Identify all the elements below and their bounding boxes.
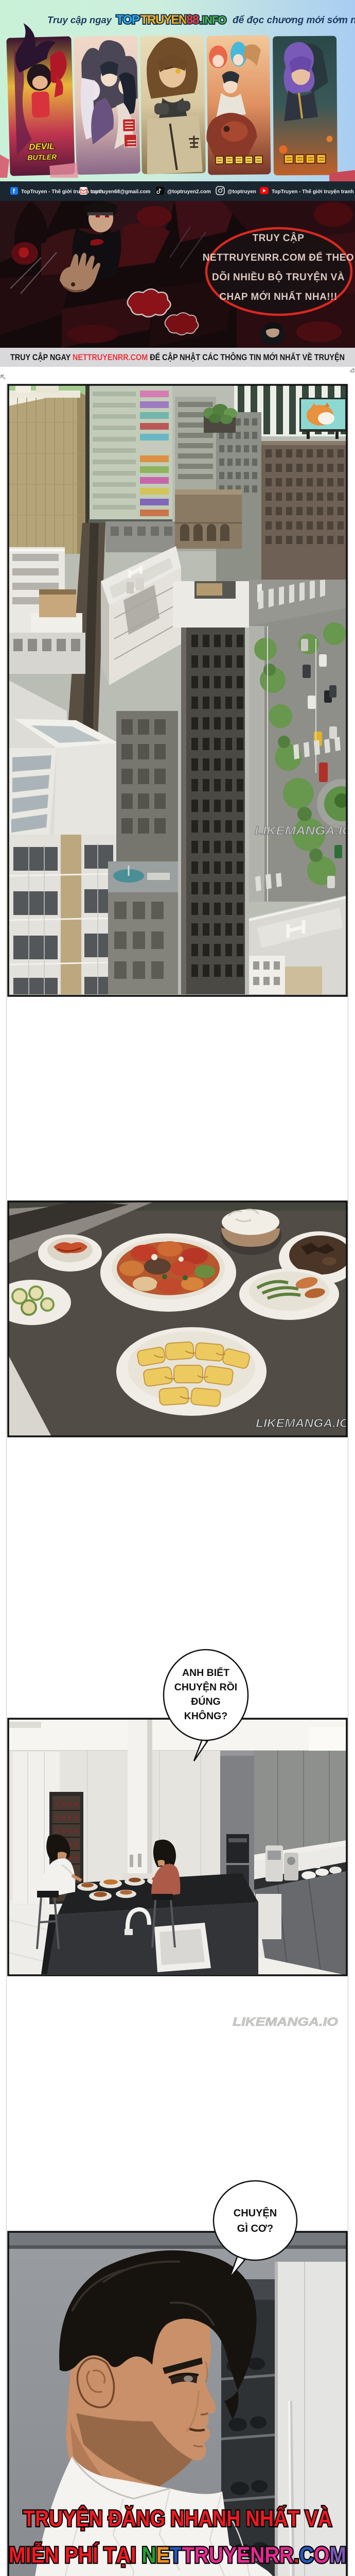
svg-text:DÕI NHIỀU BỘ TRUYỆN VÀ: DÕI NHIỀU BỘ TRUYỆN VÀ: [212, 272, 345, 283]
svg-text:NETTRUYENRR.COM ĐỂ THEO: NETTRUYENRR.COM ĐỂ THEO: [203, 252, 354, 263]
svg-text:TRUY CẬP NGAY NETTRUYENRR.COM: TRUY CẬP NGAY NETTRUYENRR.COM ĐỂ CẬP NHẬ…: [10, 352, 345, 362]
svg-text:để đọc chương mới sớm nhất: để đọc chương mới sớm nhất: [233, 15, 355, 26]
svg-text:TRUYEN: TRUYEN: [140, 13, 187, 27]
svg-text:ĐÚNG: ĐÚNG: [191, 1695, 220, 1707]
svg-text:MIỄN PHÍ TẠI NETTRUYENRR.COM: MIỄN PHÍ TẠI NETTRUYENRR.COM: [9, 2542, 346, 2568]
svg-text:BUTLER: BUTLER: [27, 152, 57, 162]
svg-text:TRUYỆN ĐĂNG NHANH NHẤT VÀ: TRUYỆN ĐĂNG NHANH NHẤT VÀ: [23, 2505, 332, 2531]
svg-text:CHUYỆN RỒI: CHUYỆN RỒI: [174, 1681, 237, 1693]
svg-text:LIKEMANGA.IO: LIKEMANGA.IO: [255, 824, 352, 837]
svg-text:Truy cập ngay: Truy cập ngay: [47, 14, 113, 25]
svg-text:CHAP MỚI NHẤT NHA!!!: CHAP MỚI NHẤT NHA!!!: [219, 291, 338, 302]
svg-text:GÌ CƠ?: GÌ CƠ?: [237, 2223, 273, 2234]
svg-text:88: 88: [186, 13, 199, 27]
svg-text:@toptruyen: @toptruyen: [227, 189, 256, 195]
svg-text:TopTruyen - Thế giới truyện tr: TopTruyen - Thế giới truyện tranh: [272, 189, 354, 195]
svg-text:KHÔNG?: KHÔNG?: [184, 1709, 228, 1722]
svg-text:TRUY CẬP: TRUY CẬP: [253, 232, 305, 244]
svg-text:LIKEMANGA.IO: LIKEMANGA.IO: [233, 2015, 338, 2028]
svg-text:toptruyen68@gmail.com: toptruyen68@gmail.com: [91, 189, 151, 195]
svg-text:CHUYỆN: CHUYỆN: [234, 2207, 277, 2219]
svg-text:TOP: TOP: [116, 13, 140, 27]
svg-text:LIKEMANGA.IO: LIKEMANGA.IO: [256, 1416, 349, 1430]
svg-text:.INFO: .INFO: [200, 14, 226, 26]
svg-text:ANH BIẾT: ANH BIẾT: [182, 1667, 229, 1679]
svg-text:@toptruyen2.com: @toptruyen2.com: [167, 189, 211, 195]
svg-text:DEVIL: DEVIL: [29, 141, 55, 151]
